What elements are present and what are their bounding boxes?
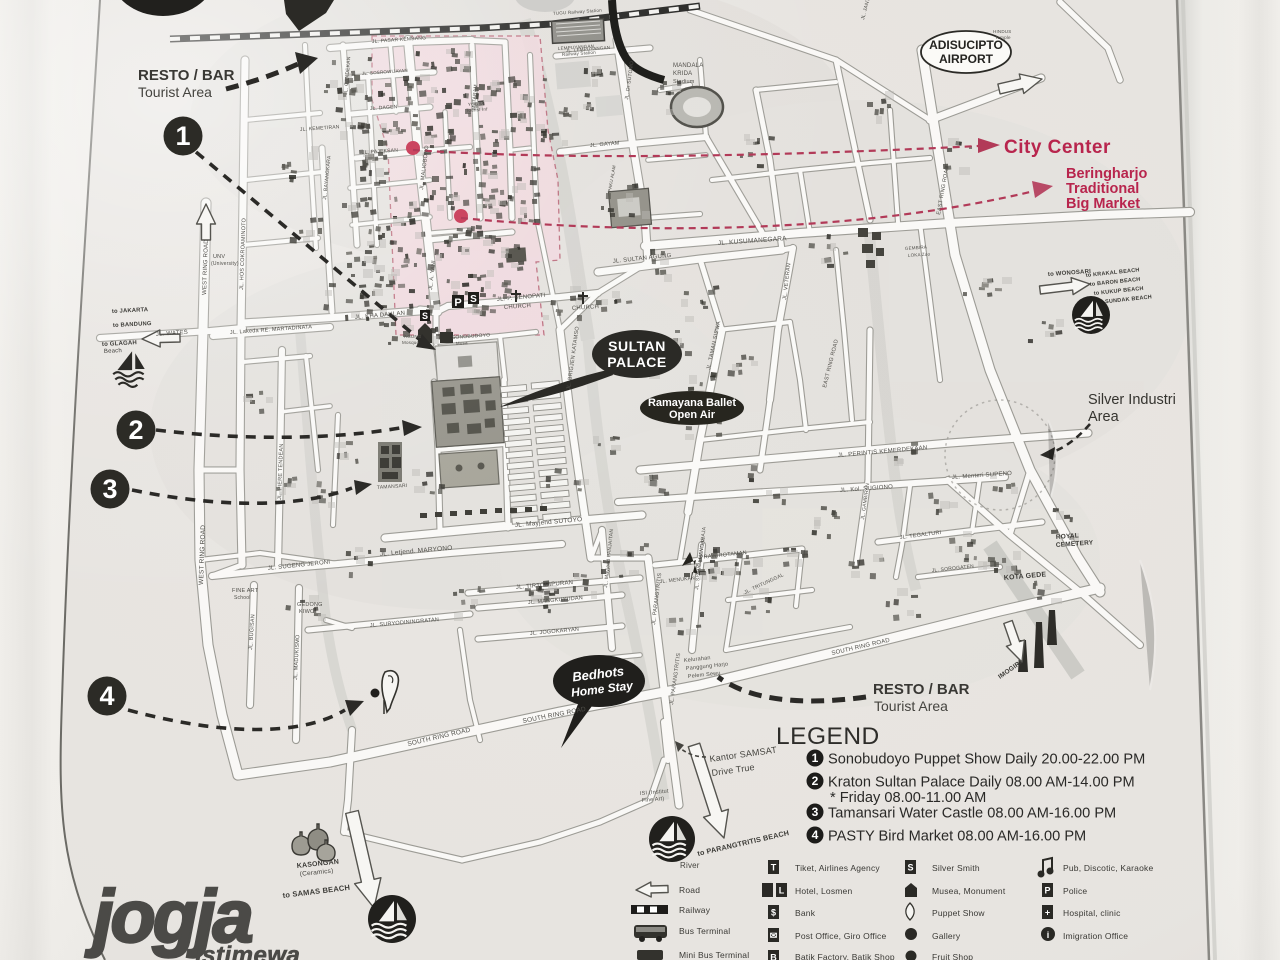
svg-text:P: P <box>1044 886 1050 896</box>
svg-text:PASTY Bird Market 08.00 AM-16.: PASTY Bird Market 08.00 AM-16.00 PM <box>828 829 1086 845</box>
svg-text:Sonobudoyo Puppet Show Daily 2: Sonobudoyo Puppet Show Daily 20.00-22.00… <box>828 752 1145 768</box>
svg-text:* Friday 08.00-11.00 AM: * Friday 08.00-11.00 AM <box>830 790 986 806</box>
svg-text:Tourist Area: Tourist Area <box>874 698 948 714</box>
svg-text:Traditional: Traditional <box>1066 181 1139 197</box>
svg-text:istimewa: istimewa <box>195 942 300 960</box>
svg-text:Silver Smith: Silver Smith <box>932 863 980 873</box>
svg-text:Police: Police <box>1063 886 1087 896</box>
svg-text:Bank: Bank <box>795 908 816 918</box>
svg-text:Kraton Sultan Palace Daily 08.: Kraton Sultan Palace Daily 08.00 AM-14.0… <box>828 775 1135 791</box>
svg-text:River: River <box>680 861 700 870</box>
svg-text:i: i <box>1047 930 1050 940</box>
svg-text:Gallery: Gallery <box>932 931 961 941</box>
svg-text:Beach: Beach <box>104 348 122 355</box>
svg-text:1: 1 <box>812 751 819 765</box>
svg-text:S: S <box>422 311 428 321</box>
svg-text:Mini Bus Terminal: Mini Bus Terminal <box>679 950 749 960</box>
svg-text:P: P <box>454 297 461 309</box>
svg-text:RESTO / BAR: RESTO / BAR <box>873 681 970 698</box>
svg-text:Area: Area <box>1088 409 1120 425</box>
svg-text:Railway: Railway <box>679 905 711 915</box>
svg-text:KIWO: KIWO <box>299 609 315 615</box>
svg-text:Temple: Temple <box>995 35 1011 40</box>
svg-text:Big Market: Big Market <box>1066 196 1140 212</box>
svg-text:Musa: Musa <box>456 340 468 346</box>
svg-text:L: L <box>779 886 785 896</box>
svg-text:FINE ART: FINE ART <box>232 588 259 594</box>
svg-text:City Center: City Center <box>1004 137 1111 158</box>
svg-text:S: S <box>907 863 913 873</box>
svg-text:(University): (University) <box>211 261 239 267</box>
svg-text:Imigration Office: Imigration Office <box>1063 931 1128 941</box>
svg-text:Beringharjo: Beringharjo <box>1066 166 1148 182</box>
svg-text:Tiket, Airlines Agency: Tiket, Airlines Agency <box>795 863 880 873</box>
svg-text:4: 4 <box>812 828 819 842</box>
svg-text:3: 3 <box>102 474 117 504</box>
svg-text:Puppet Show: Puppet Show <box>932 908 985 918</box>
svg-text:4: 4 <box>99 681 114 711</box>
svg-text:B: B <box>770 953 777 960</box>
svg-text:UNV: UNV <box>213 254 225 260</box>
svg-text:✉: ✉ <box>770 931 778 941</box>
svg-text:GEDONG: GEDONG <box>297 602 323 608</box>
svg-text:Hospital, clinic: Hospital, clinic <box>1063 908 1121 918</box>
svg-text:HINDUS: HINDUS <box>993 29 1011 34</box>
svg-text:LEGEND: LEGEND <box>776 723 880 750</box>
svg-text:S: S <box>470 294 477 305</box>
svg-text:Ramayana Ballet: Ramayana Ballet <box>648 397 736 409</box>
svg-text:Bus Terminal: Bus Terminal <box>679 926 730 936</box>
svg-text:Musea, Monument: Musea, Monument <box>932 886 1006 896</box>
svg-text:Batik Factory, Batik Shop: Batik Factory, Batik Shop <box>795 952 895 960</box>
svg-text:Mosque: Mosque <box>402 340 420 345</box>
svg-text:ADISUCIPTO: ADISUCIPTO <box>929 38 1003 52</box>
svg-text:AIRPORT: AIRPORT <box>939 52 994 66</box>
svg-text:3: 3 <box>812 805 819 819</box>
svg-text:$: $ <box>771 908 776 918</box>
svg-text:Hotel, Losmen: Hotel, Losmen <box>795 886 852 896</box>
svg-text:Pub, Discotic, Karaoke: Pub, Discotic, Karaoke <box>1063 863 1153 873</box>
svg-text:School: School <box>234 595 251 601</box>
svg-text:SULTAN: SULTAN <box>608 338 666 354</box>
svg-text:AGUNG: AGUNG <box>404 334 422 339</box>
svg-text:Tourist Area: Tourist Area <box>138 84 212 100</box>
svg-text:T: T <box>771 863 777 873</box>
svg-text:Tamansari Water Castle 08.00 A: Tamansari Water Castle 08.00 AM-16.00 PM <box>828 806 1116 822</box>
svg-text:MANDALA: MANDALA <box>673 63 703 69</box>
svg-text:+: + <box>1045 908 1050 918</box>
svg-text:PALACE: PALACE <box>607 354 667 370</box>
svg-text:RESTO / BAR: RESTO / BAR <box>138 67 235 84</box>
svg-text:Stadium: Stadium <box>673 79 695 85</box>
svg-text:Silver Industri: Silver Industri <box>1088 392 1176 408</box>
svg-text:2: 2 <box>812 774 819 788</box>
svg-text:2: 2 <box>128 415 143 445</box>
svg-text:KRIDA: KRIDA <box>673 71 692 77</box>
svg-text:Road: Road <box>679 885 700 895</box>
svg-text:Post Office, Giro Office: Post Office, Giro Office <box>795 931 886 941</box>
svg-text:1: 1 <box>175 121 190 151</box>
svg-text:Fruit Shop: Fruit Shop <box>932 952 973 960</box>
svg-text:Open Air: Open Air <box>669 409 716 421</box>
